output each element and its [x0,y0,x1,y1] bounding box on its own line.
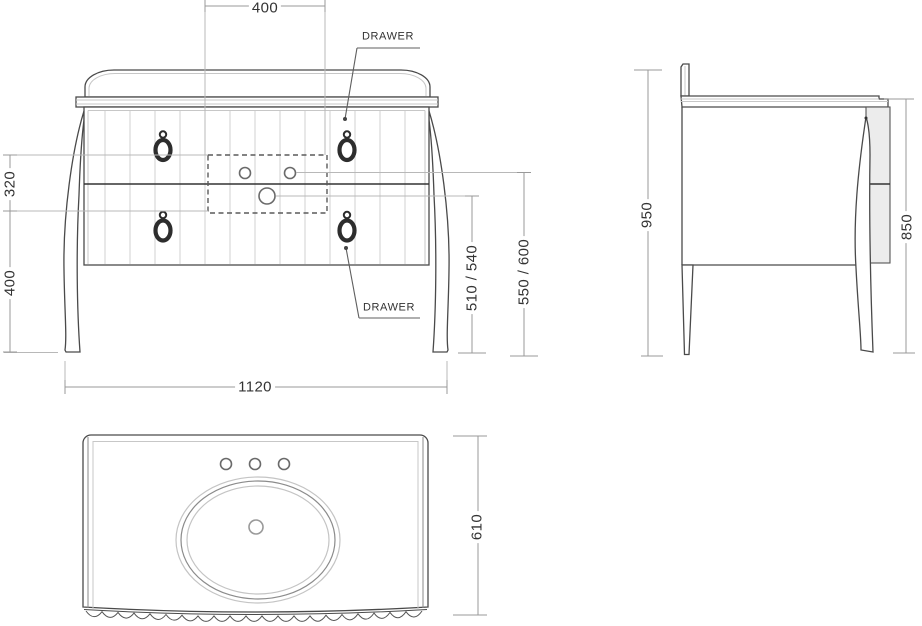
side-back-leg [682,265,693,355]
drain-hole-marker [259,188,275,204]
backsplash [85,70,430,97]
dim-label-total-height: 950 [640,199,655,231]
front-right-leg [429,111,449,352]
drawing-canvas [0,0,922,626]
callout-lower-drawer: DRAWER [360,303,418,314]
dim-label-drain-height: 510 / 540 [465,242,480,314]
top-view [83,435,487,621]
faucet-hole-marker [240,168,251,179]
faucet-hole-marker [285,168,296,179]
dim-label-left-lower: 400 [3,267,18,299]
callout-upper-drawer: DRAWER [359,32,417,43]
side-front-leg [855,117,873,353]
side-backsplash [681,64,689,96]
front-view [3,0,538,394]
side-view [634,64,915,356]
side-countertop [681,96,888,107]
countertop-front-edge [76,97,438,107]
dim-label-depth: 610 [470,511,485,543]
technical-drawing-sheet: 400 320 400 1120 510 / 540 550 / 600 DRA… [0,0,922,626]
drain-hole [249,520,263,534]
front-left-leg [64,111,84,352]
dim-label-overall-width: 1120 [235,380,275,395]
dim-label-cutout-width: 400 [249,1,281,16]
dim-label-left-upper: 320 [3,168,18,200]
top-faucet-holes [221,459,290,470]
cabinet-body [84,107,429,265]
dim-label-faucet-height: 550 / 600 [517,236,532,308]
dim-label-worktop-height: 850 [900,211,915,243]
